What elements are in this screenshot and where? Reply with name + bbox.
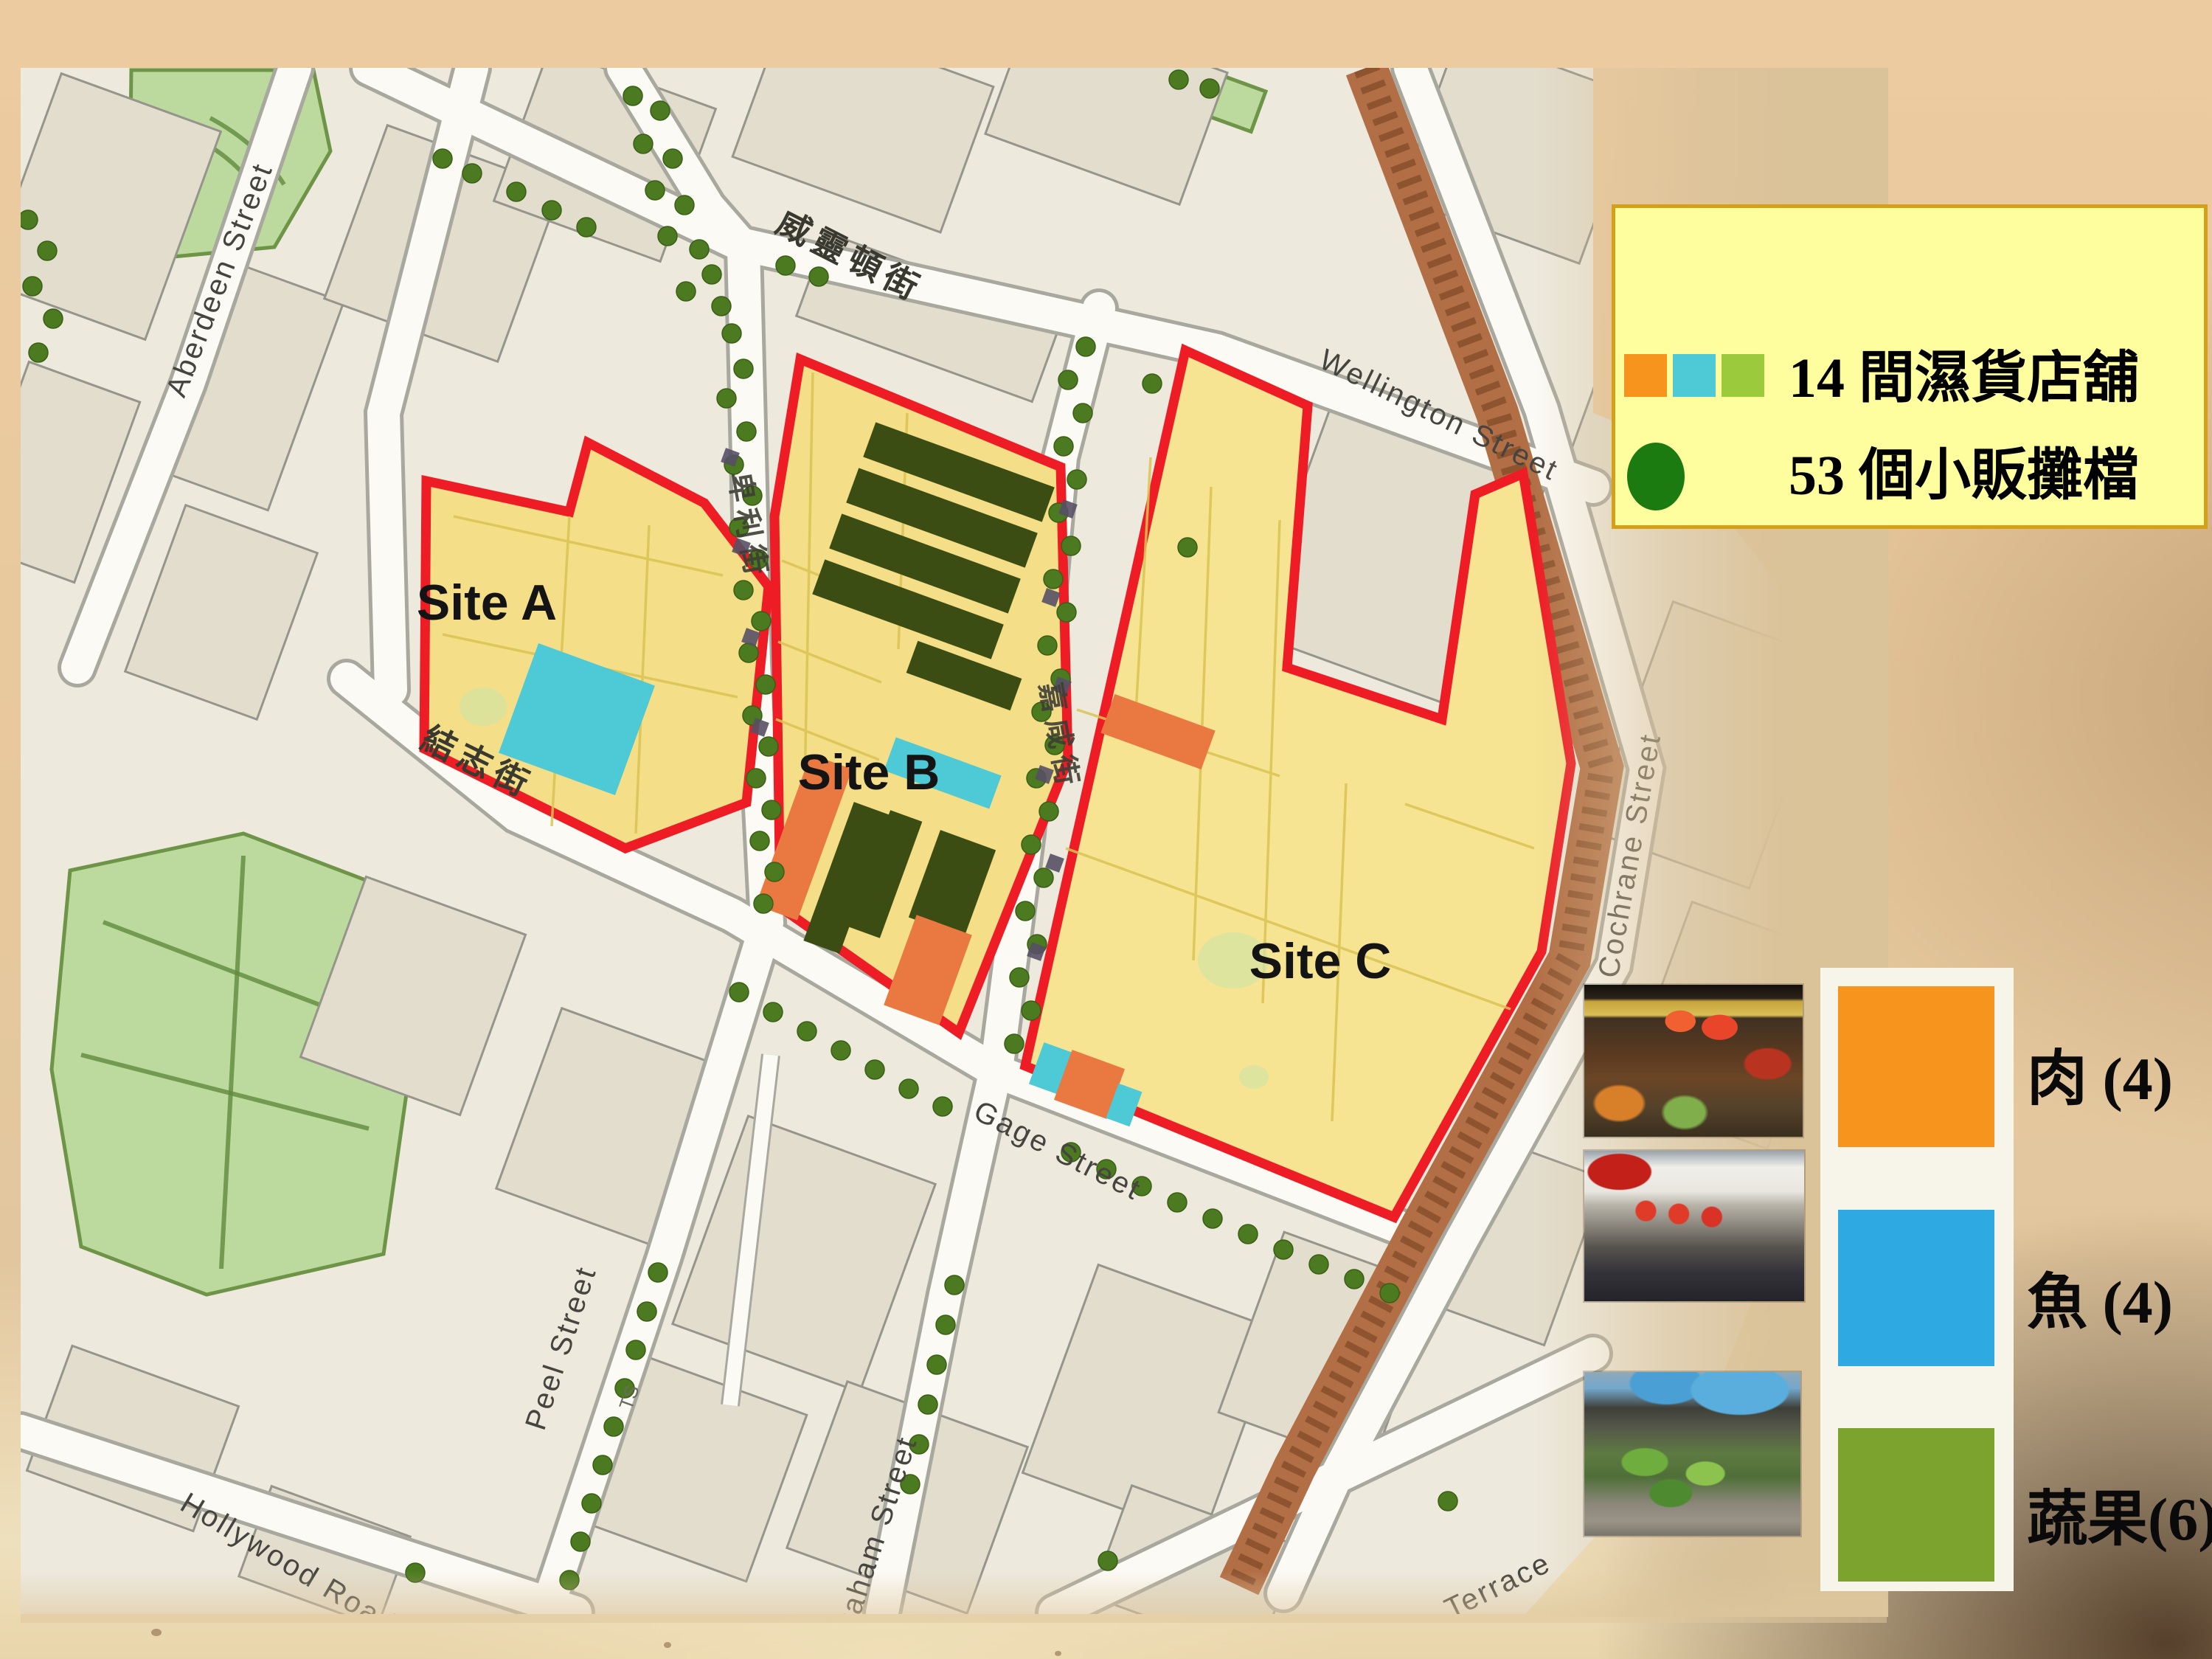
fish-stall-photo <box>1584 1151 1804 1301</box>
legend-line-hawkers: 53 個小販攤檔 <box>1789 429 2139 510</box>
slide-market-sites-map: Aberdeen Street 威靈頓街 Wellington Street 結… <box>0 0 2212 1659</box>
side-legend-label-fish: 魚 (4) <box>2027 1253 2173 1340</box>
side-legend-swatch-fish <box>1838 1210 1994 1366</box>
side-legend-label-vegetable: 蔬果(6) <box>2027 1469 2212 1557</box>
site-a-label: Site A <box>417 575 557 631</box>
site-b-label: Site B <box>798 744 940 800</box>
site-c-label: Site C <box>1249 933 1392 989</box>
side-legend-swatch-vegetable <box>1838 1428 1994 1582</box>
legend-chip-fish <box>1673 354 1716 397</box>
parchment-speck <box>1055 1651 1061 1656</box>
vegetable-stall-photo <box>1584 1372 1800 1536</box>
parchment-speck <box>664 1642 671 1648</box>
legend-chip-vegetable <box>1722 354 1764 397</box>
side-legend-label-meat: 肉 (4) <box>2027 1029 2173 1117</box>
legend-line-shops: 14 間濕貨店舖 <box>1789 332 2139 413</box>
side-legend-swatch-meat <box>1838 986 1994 1147</box>
legend-chip-meat <box>1624 354 1667 397</box>
map-bottom-fade <box>21 1571 1887 1623</box>
parchment-speck <box>151 1629 162 1636</box>
meat-stall-photo <box>1584 985 1803 1137</box>
legend-hawker-circle-icon <box>1627 443 1685 510</box>
